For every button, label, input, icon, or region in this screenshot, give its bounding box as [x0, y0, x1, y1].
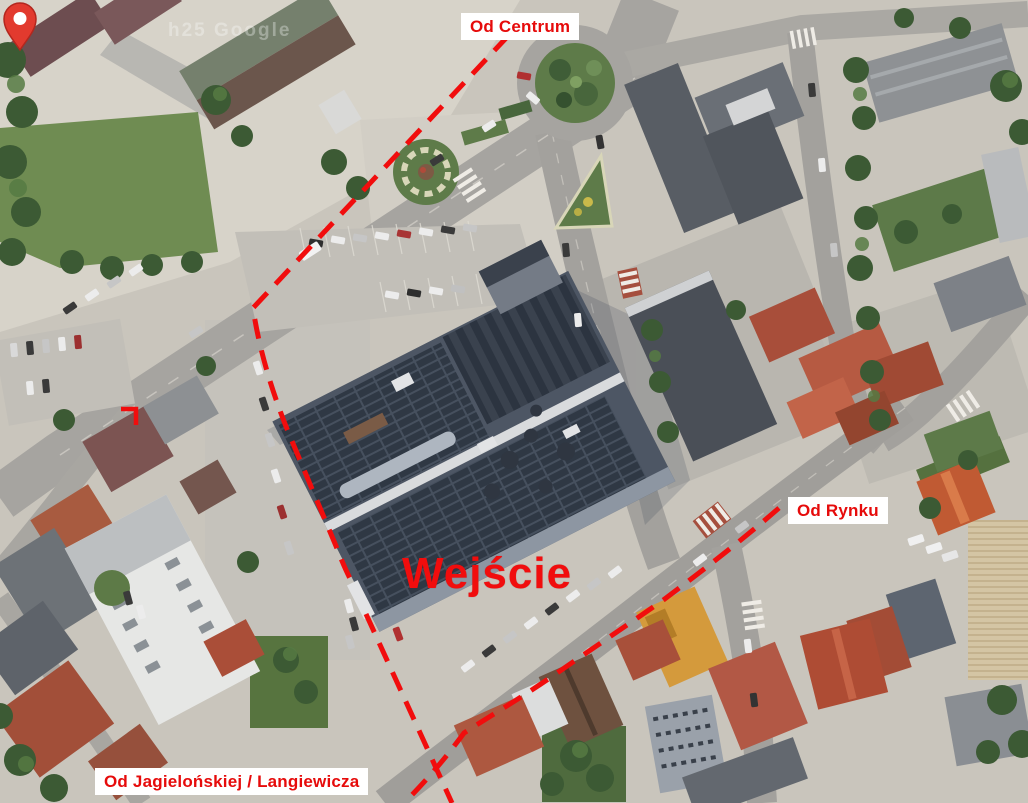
imagery-watermark: h25 Google [168, 20, 291, 42]
map-pin-icon [0, 0, 40, 52]
label-od-jagielonskiej-langiewicza: Od Jagielońskiej / Langiewicza [95, 768, 368, 795]
label-od-rynku: Od Rynku [788, 497, 888, 524]
entrance-label: Wejście [402, 552, 572, 596]
aerial-imagery [0, 0, 1028, 803]
courtyard-green [94, 570, 130, 606]
roundabout [517, 25, 633, 141]
label-od-centrum: Od Centrum [461, 13, 579, 40]
flower-bed [393, 139, 459, 205]
satellite-map: Od Centrum Od Rynku Od Jagielońskiej / L… [0, 0, 1028, 803]
